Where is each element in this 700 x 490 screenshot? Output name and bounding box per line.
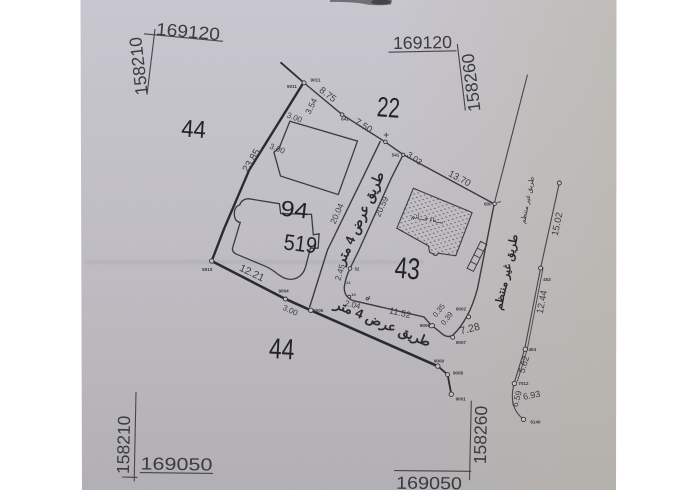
svg-text:404: 404 xyxy=(528,347,536,352)
svg-text:94: 94 xyxy=(279,195,310,223)
svg-text:169120: 169120 xyxy=(393,32,453,53)
svg-text:44: 44 xyxy=(180,115,206,144)
svg-text:9007: 9007 xyxy=(456,340,467,345)
svg-text:9011: 9011 xyxy=(287,84,297,89)
svg-text:600: 600 xyxy=(484,202,492,207)
svg-text:9002: 9002 xyxy=(456,306,467,311)
svg-text:9005: 9005 xyxy=(313,308,324,313)
svg-text:158210: 158210 xyxy=(113,415,134,474)
svg-text:641: 641 xyxy=(341,117,349,122)
svg-text:9006: 9006 xyxy=(420,323,431,328)
svg-text:6140: 6140 xyxy=(530,419,541,424)
svg-text:22: 22 xyxy=(376,91,401,124)
svg-text:9008: 9008 xyxy=(453,371,464,376)
svg-text:9009: 9009 xyxy=(434,359,445,364)
svg-text:21: 21 xyxy=(346,280,351,285)
svg-text:7012: 7012 xyxy=(518,381,529,386)
svg-text:9001: 9001 xyxy=(456,396,467,401)
svg-text:43: 43 xyxy=(393,251,421,286)
svg-text:519: 519 xyxy=(282,229,318,258)
svg-text:453: 453 xyxy=(543,277,551,282)
svg-text:9010: 9010 xyxy=(202,267,213,272)
svg-text:158260: 158260 xyxy=(470,405,491,464)
svg-text:10: 10 xyxy=(351,292,356,297)
svg-text:52: 52 xyxy=(355,266,360,271)
svg-text:541: 541 xyxy=(392,153,400,158)
svg-text:9004: 9004 xyxy=(278,288,289,293)
svg-text:169050: 169050 xyxy=(140,453,213,474)
svg-text:169050: 169050 xyxy=(396,473,462,490)
svg-text:44: 44 xyxy=(268,333,295,366)
svg-text:9011: 9011 xyxy=(311,78,321,83)
